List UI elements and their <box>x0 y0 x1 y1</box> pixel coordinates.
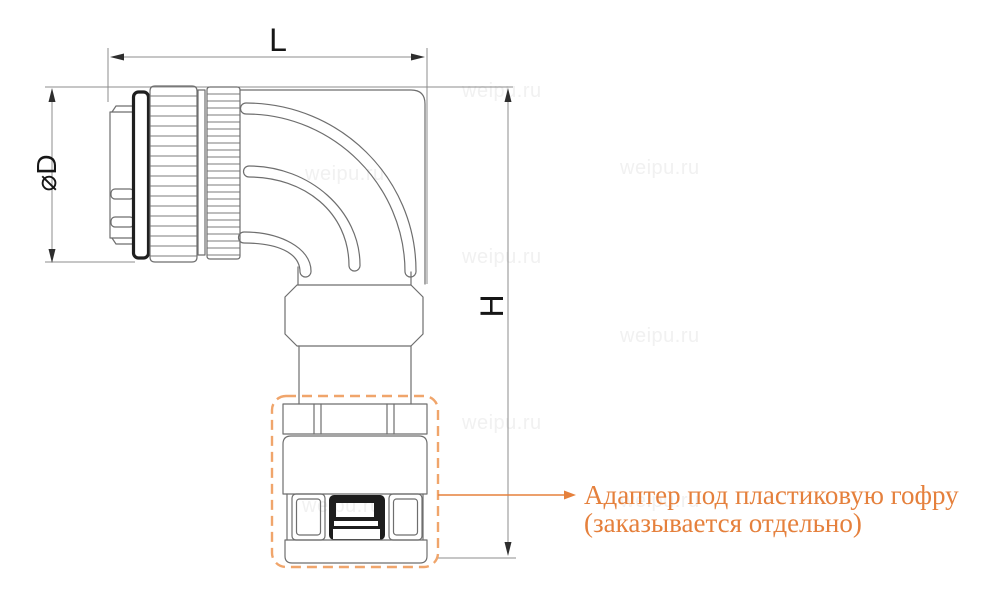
adapter-latch-center <box>329 495 385 540</box>
dim-label-height: H <box>474 294 510 317</box>
contact-pin <box>111 217 134 227</box>
arrowhead-right <box>411 54 425 61</box>
arrowhead-down <box>49 249 56 263</box>
elbow-rib-outer <box>241 103 417 277</box>
gland-nut <box>285 285 423 404</box>
adapter <box>283 404 427 563</box>
dim-label-length: L <box>269 22 287 58</box>
adapter-body <box>283 436 427 494</box>
adapter-callout-line1: Адаптер под пластиковую гофру <box>584 481 984 509</box>
adapter-highlight-box <box>272 396 438 567</box>
locking-ring <box>207 87 240 259</box>
adapter-base <box>285 540 427 563</box>
dimension-height: H <box>437 88 516 558</box>
mating-shell <box>110 92 149 258</box>
dimension-diameter: ⌀D <box>31 87 513 263</box>
elbow-neck <box>298 267 411 285</box>
spacer-ring <box>198 90 205 255</box>
adapter-callout-line2: (заказывается отдельно) <box>584 509 984 537</box>
adapter-latch-left-inner <box>297 499 321 535</box>
adapter-flange <box>283 404 427 434</box>
arrowhead-up <box>505 88 512 102</box>
arrowhead-up <box>49 88 56 102</box>
contact-pin <box>111 189 134 199</box>
locking-ring-ribs <box>208 94 240 255</box>
technical-drawing-page: weipu.ru weipu.ru weipu.ru weipu.ru weip… <box>0 0 1000 591</box>
coupling-ring-ribs <box>151 96 197 256</box>
key-tab-top <box>112 106 134 112</box>
elbow-body <box>239 90 426 285</box>
arrowhead-down <box>505 542 512 556</box>
adapter-latch-right-inner <box>394 499 418 535</box>
elbow-rib-middle <box>244 166 361 271</box>
dim-label-diameter: ⌀D <box>31 154 62 191</box>
elbow-rib-inner <box>239 232 312 277</box>
arrowhead-left <box>110 54 124 61</box>
seal-ring <box>134 92 149 258</box>
callout-leader <box>438 491 576 500</box>
adapter-callout: Адаптер под пластиковую гофру (заказывае… <box>584 481 984 537</box>
adapter-flange-facets <box>314 404 394 434</box>
key-tab-bottom <box>112 238 134 244</box>
coupling-ring <box>150 86 205 262</box>
leader-arrowhead <box>564 491 576 500</box>
